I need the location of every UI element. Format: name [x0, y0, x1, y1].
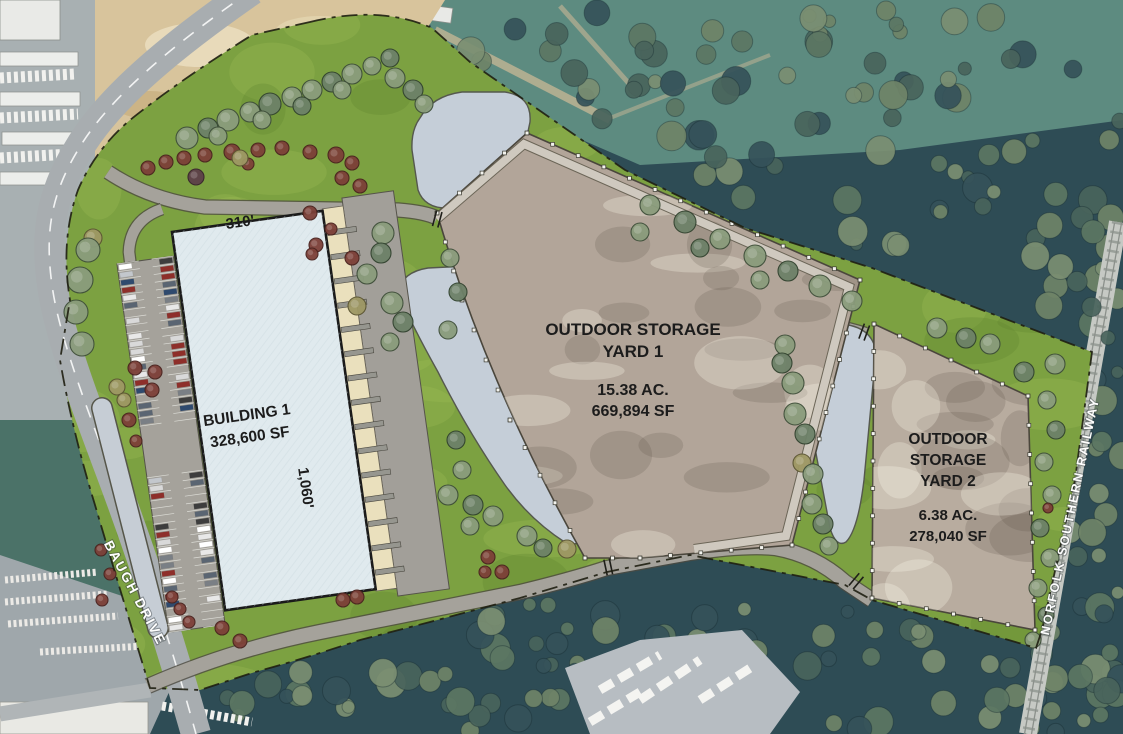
forest-crown-icon [974, 198, 991, 215]
fence-post [838, 358, 842, 362]
tree-highlight [351, 300, 359, 308]
gravel-mottle [684, 462, 770, 492]
forest-crown-icon [701, 20, 723, 42]
forest-crown-icon [732, 31, 753, 52]
fence-post [503, 151, 507, 155]
forest-crown-icon [279, 689, 293, 703]
forest-crown-icon [438, 667, 453, 682]
site-plan-rendering: 310' BUILDING 1 328,600 SF 1,060' OUTDOO… [0, 0, 1123, 734]
forest-crown-icon [1077, 714, 1091, 728]
forest-crown-icon [838, 216, 868, 246]
fence-post [602, 165, 606, 169]
forest-crown-icon [1043, 702, 1061, 720]
forest-crown-icon [821, 651, 837, 667]
tree-highlight [497, 567, 503, 573]
tree-highlight [384, 52, 392, 60]
gravel-mottle [892, 380, 941, 432]
forest-crown-icon [879, 81, 908, 110]
forest-crown-icon [940, 71, 956, 87]
yard2-area: 278,040 SF [909, 528, 987, 545]
forest-crown-icon [540, 597, 555, 612]
tree-highlight [190, 171, 197, 178]
forest-crown-icon [289, 661, 312, 684]
tree-highlight [235, 636, 241, 642]
forest-crown-icon [1092, 432, 1112, 452]
forest-crown-icon [978, 144, 999, 165]
forest-crown-icon [689, 121, 717, 149]
fence-post [804, 490, 808, 494]
forest-crown-icon [446, 687, 475, 716]
fence-post [628, 176, 632, 180]
forest-crown-icon [958, 62, 971, 75]
forest-crown-icon [981, 655, 999, 673]
tree-highlight [243, 105, 252, 114]
tree-highlight [1044, 552, 1052, 560]
fence-post [832, 267, 836, 271]
forest-crown-icon [1078, 518, 1106, 546]
forest-crown-icon [889, 17, 904, 32]
tree-highlight [336, 84, 344, 92]
forest-crown-icon [546, 633, 568, 655]
forest-crown-icon [931, 690, 957, 716]
tree-highlight [161, 157, 167, 163]
tree-highlight [450, 434, 458, 442]
fence-post [923, 346, 927, 350]
tree-highlight [816, 517, 825, 526]
tree-highlight [418, 98, 426, 106]
fence-post [551, 142, 555, 146]
tree-highlight [442, 324, 450, 332]
tree-highlight [396, 315, 405, 324]
forest-crown-icon [1001, 50, 1020, 69]
yard1-acreage: 15.38 AC. [597, 382, 668, 399]
tree-highlight [775, 356, 784, 365]
fence-post [653, 188, 657, 192]
forest-crown-icon [1101, 331, 1115, 345]
forest-crown-icon [1102, 644, 1119, 661]
fence-post [480, 171, 484, 175]
forest-crown-icon [369, 659, 397, 687]
tree-highlight [823, 540, 831, 548]
fence-post [1033, 628, 1037, 632]
forest-crown-icon [846, 87, 862, 103]
forest-crown-icon [1095, 605, 1113, 623]
tree-highlight [634, 226, 642, 234]
fence-post [568, 529, 572, 533]
forest-crown-icon [1082, 297, 1101, 316]
forest-crown-icon [1081, 220, 1105, 244]
tree-highlight [150, 367, 156, 373]
tree-highlight [481, 568, 486, 573]
gravel-mottle [565, 335, 601, 365]
fence-post [1028, 453, 1032, 457]
tree-highlight [781, 264, 790, 273]
forest-crown-icon [592, 617, 619, 644]
forest-crown-icon [525, 690, 543, 708]
forest-crown-icon [523, 598, 536, 611]
tree-highlight [256, 114, 264, 122]
fence-post [576, 154, 580, 158]
tree-highlight [713, 232, 722, 241]
tree-highlight [1045, 505, 1050, 510]
fence-post [872, 350, 876, 354]
tree-highlight [1041, 394, 1049, 402]
yard2-title-line1: OUTDOOR [908, 431, 987, 448]
tree-highlight [754, 274, 762, 282]
tree-highlight [1038, 456, 1046, 464]
tree-highlight [1048, 357, 1057, 366]
forest-crown-icon [941, 8, 968, 35]
tree-highlight [785, 375, 795, 385]
forest-crown-icon [931, 155, 948, 172]
fence-post [496, 388, 500, 392]
forest-crown-icon [1068, 664, 1092, 688]
forest-crown-icon [342, 701, 355, 714]
tree-highlight [305, 147, 311, 153]
tree-highlight [959, 331, 968, 340]
forest-crown-icon [947, 164, 963, 180]
forest-crown-icon [1092, 548, 1107, 563]
forest-crown-icon [584, 0, 610, 26]
forest-crown-icon [229, 691, 254, 716]
tree-highlight [406, 83, 415, 92]
forest-crown-icon [977, 4, 1005, 32]
tree-highlight [176, 605, 181, 610]
forest-crown-icon [795, 111, 820, 136]
tree-highlight [384, 295, 394, 305]
fence-post [679, 199, 683, 203]
tree-highlight [285, 90, 294, 99]
tree-highlight [561, 543, 569, 551]
tree-highlight [798, 427, 807, 436]
fence-post [443, 240, 447, 244]
tree-highlight [845, 294, 854, 303]
fence-post [831, 384, 835, 388]
forest-crown-icon [1002, 139, 1027, 164]
forest-crown-icon [477, 607, 505, 635]
fence-post [781, 244, 785, 248]
fence-post [871, 514, 875, 518]
forest-crown-icon [692, 605, 718, 631]
fence-post [872, 377, 876, 381]
tree-highlight [308, 250, 313, 255]
tree-highlight [179, 130, 189, 140]
tree-highlight [226, 146, 233, 153]
fence-post [871, 541, 875, 545]
tree-highlight [201, 121, 210, 130]
fence-post [484, 358, 488, 362]
tree-highlight [345, 67, 354, 76]
tree-highlight [124, 415, 130, 421]
forest-crown-icon [660, 71, 685, 96]
tree-highlight [262, 96, 272, 106]
fence-post [553, 501, 557, 505]
forest-crown-icon [864, 52, 886, 74]
fence-post [807, 255, 811, 259]
forest-crown-icon [292, 686, 312, 706]
tree-highlight [456, 464, 464, 472]
forest-crown-icon [987, 185, 1001, 199]
fence-post [1027, 423, 1031, 427]
forest-crown-icon [1094, 677, 1120, 703]
fence-post [952, 612, 956, 616]
tree-highlight [212, 130, 220, 138]
forest-crown-icon [866, 136, 896, 166]
tree-highlight [747, 248, 757, 258]
tree-highlight [74, 336, 85, 347]
forest-crown-icon [1067, 271, 1087, 291]
tree-highlight [1046, 489, 1054, 497]
forest-crown-icon [800, 5, 827, 32]
gravel-mottle [549, 362, 625, 380]
forest-crown-icon [731, 185, 755, 209]
fence-post [523, 446, 527, 450]
forest-crown-icon [712, 77, 739, 104]
tree-highlight [483, 552, 489, 558]
tree-highlight [130, 363, 136, 369]
fence-post [845, 331, 849, 335]
fence-post [760, 546, 764, 550]
tree-highlight [325, 75, 334, 84]
fence-post [756, 233, 760, 237]
tree-highlight [111, 381, 118, 388]
forest-crown-icon [1068, 547, 1088, 567]
tree-highlight [384, 336, 392, 344]
tree-highlight [143, 163, 149, 169]
forest-crown-icon [1089, 484, 1109, 504]
forest-crown-icon [779, 67, 796, 84]
fence-post [979, 617, 983, 621]
forest-crown-icon [541, 689, 559, 707]
tree-highlight [464, 520, 472, 528]
tree-highlight [168, 593, 173, 598]
tree-highlight [355, 181, 361, 187]
fence-post [924, 607, 928, 611]
fence-post [452, 269, 456, 273]
fence-post [858, 278, 862, 282]
forest-crown-icon [933, 205, 947, 219]
tree-highlight [441, 488, 450, 497]
forest-crown-icon [1000, 658, 1020, 678]
tree-highlight [787, 406, 797, 416]
tree-highlight [806, 467, 815, 476]
fence-post [797, 517, 801, 521]
tree-highlight [277, 143, 283, 149]
tree-highlight [537, 542, 545, 550]
tree-highlight [220, 112, 230, 122]
fence-post [1000, 382, 1004, 386]
fence-post [699, 551, 703, 555]
yard1-area: 669,894 SF [592, 403, 675, 420]
gravel-mottle [774, 300, 831, 323]
yard1-title-line2: YARD 1 [603, 342, 664, 361]
tree-highlight [643, 198, 652, 207]
tree-highlight [253, 145, 259, 151]
fence-post [472, 328, 476, 332]
forest-crown-icon [1112, 113, 1123, 129]
fence-post [1032, 599, 1036, 603]
forest-crown-icon [911, 624, 926, 639]
tree-highlight [185, 618, 190, 623]
tree-highlight [98, 596, 103, 601]
fence-post [872, 404, 876, 408]
fence-post [1026, 394, 1030, 398]
tree-highlight [1027, 634, 1034, 641]
forest-crown-icon [1035, 292, 1062, 319]
forest-crown-icon [490, 646, 515, 671]
fence-post [870, 569, 874, 573]
forest-crown-icon [1025, 133, 1040, 148]
tree-highlight [71, 271, 83, 283]
forest-crown-icon [922, 650, 946, 674]
tree-highlight [311, 240, 317, 246]
tree-highlight [1034, 522, 1042, 530]
tree-highlight [1032, 582, 1040, 590]
forest-crown-icon [984, 687, 1009, 712]
tree-highlight [132, 437, 137, 442]
tree-highlight [444, 252, 452, 260]
forest-crown-icon [1044, 182, 1068, 206]
forest-crown-icon [1111, 366, 1123, 378]
fence-post [538, 473, 542, 477]
tree-highlight [366, 60, 374, 68]
gravel-mottle [703, 266, 739, 290]
tree-highlight [347, 158, 353, 164]
forest-crown-icon [749, 141, 775, 167]
tree-highlight [147, 385, 153, 391]
fence-post [1030, 540, 1034, 544]
tree-highlight [1050, 424, 1058, 432]
fence-post [872, 322, 876, 326]
gravel-mottle [611, 530, 675, 559]
forest-crown-icon [884, 109, 902, 127]
forest-crown-icon [536, 658, 551, 673]
tree-highlight [97, 546, 102, 551]
fence-post [1031, 570, 1035, 574]
forest-crown-icon [1093, 707, 1109, 723]
fence-post [871, 459, 875, 463]
tree-highlight [778, 338, 787, 347]
fence-post [975, 370, 979, 374]
forest-crown-icon [561, 60, 588, 87]
tree-highlight [200, 150, 206, 156]
forest-crown-icon [1099, 130, 1119, 150]
tree-highlight [520, 529, 529, 538]
tree-highlight [360, 267, 369, 276]
fence-post [871, 487, 875, 491]
tree-highlight [466, 498, 475, 507]
tree-highlight [217, 623, 223, 629]
forest-crown-icon [529, 636, 544, 651]
forest-crown-icon [1021, 242, 1049, 270]
tree-highlight [486, 509, 495, 518]
fence-post [898, 334, 902, 338]
tree-highlight [179, 153, 185, 159]
tree-highlight [805, 497, 814, 506]
tree-highlight [296, 100, 304, 108]
tree-highlight [337, 173, 343, 179]
forest-crown-icon [1037, 213, 1063, 239]
forest-crown-icon [504, 18, 526, 40]
forest-crown-icon [657, 121, 687, 151]
fence-post [729, 548, 733, 552]
forest-crown-icon [635, 41, 654, 60]
forest-crown-icon [793, 652, 822, 681]
forest-crown-icon [394, 662, 422, 690]
forest-crown-icon [561, 622, 574, 635]
tree-highlight [452, 286, 460, 294]
gravel-mottle [590, 431, 652, 480]
tree-highlight [305, 83, 314, 92]
tree-highlight [330, 149, 337, 156]
tree-highlight [352, 592, 358, 598]
tree-highlight [694, 242, 702, 250]
tree-highlight [677, 214, 687, 224]
fence-post [897, 601, 901, 605]
yard1-title-line1: OUTDOOR STORAGE [545, 320, 720, 339]
forest-crown-icon [833, 186, 862, 215]
forest-crown-icon [866, 621, 883, 638]
fence-post [669, 554, 673, 558]
fence-post [508, 418, 512, 422]
forest-crown-icon [592, 109, 612, 129]
aerial-warehouse [0, 52, 78, 66]
forest-crown-icon [841, 605, 854, 618]
fence-post [1006, 623, 1010, 627]
tree-highlight [374, 246, 383, 255]
forest-crown-icon [1064, 60, 1082, 78]
tree-highlight [812, 278, 822, 288]
forest-crown-icon [806, 32, 832, 58]
fence-post [790, 543, 794, 547]
fence-post [817, 437, 821, 441]
fence-post [1030, 511, 1034, 515]
forest-crown-icon [862, 648, 880, 666]
site-plan-svg: 310' BUILDING 1 328,600 SF 1,060' OUTDOO… [0, 0, 1123, 734]
forest-crown-icon [887, 234, 909, 256]
tree-highlight [796, 457, 804, 465]
tree-highlight [327, 225, 332, 230]
tree-highlight [80, 242, 91, 253]
forest-crown-icon [826, 715, 842, 731]
tree-highlight [983, 337, 992, 346]
forest-crown-icon [704, 146, 727, 169]
forest-crown-icon [1112, 586, 1123, 598]
forest-crown-icon [505, 705, 532, 732]
fence-post [611, 556, 615, 560]
fence-post [871, 432, 875, 436]
yard2-acreage: 6.38 AC. [919, 507, 978, 524]
tree-highlight [1017, 365, 1026, 374]
forest-crown-icon [255, 671, 282, 698]
tree-highlight [338, 595, 344, 601]
fence-post [1029, 482, 1033, 486]
fence-post [583, 556, 587, 560]
tree-highlight [388, 71, 397, 80]
tree-highlight [119, 395, 125, 401]
yard2-title-line3: YARD 2 [920, 473, 975, 490]
fence-post [870, 596, 874, 600]
forest-crown-icon [666, 99, 684, 117]
fence-post [638, 556, 642, 560]
fence-post [949, 358, 953, 362]
forest-crown-icon [625, 81, 642, 98]
tree-highlight [347, 253, 353, 259]
forest-crown-icon [696, 45, 716, 65]
forest-crown-icon [738, 603, 751, 616]
forest-crown-icon [812, 624, 835, 647]
tree-highlight [234, 152, 241, 159]
